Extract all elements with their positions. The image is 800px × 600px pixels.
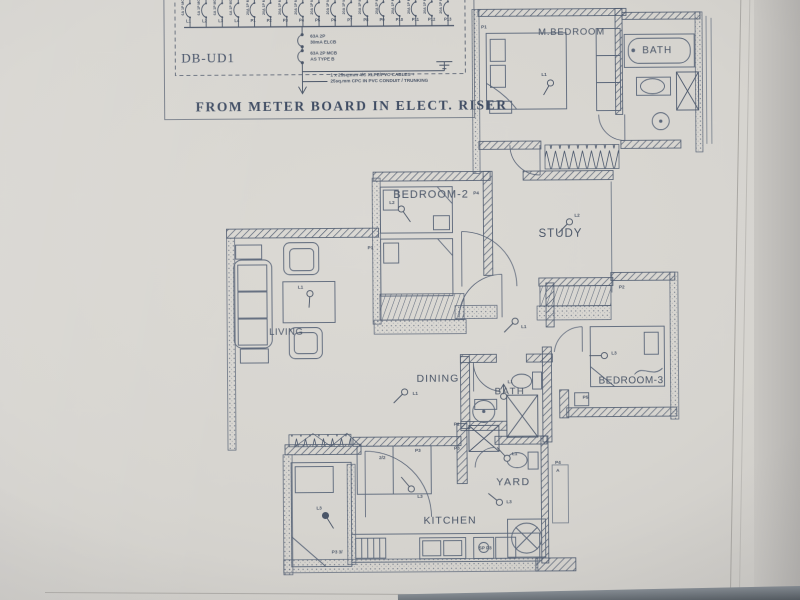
room-label-study: STUDY (538, 228, 582, 240)
circuit-ref-L2: L2 (202, 19, 207, 23)
socket-label-4: P5 (583, 396, 589, 401)
light-label-L3-10: L3 (506, 500, 511, 505)
breaker-rating-9: 20A 1P MCB (311, 0, 315, 15)
socket-label-5: P1 (454, 423, 460, 428)
breaker-rating-10: 20A 1P MCB (327, 0, 331, 15)
elcb-rating-line2: 30mA ELCB (310, 40, 336, 45)
circuit-ref-P8: P8 (363, 18, 368, 22)
breaker-rating-8: 20A 1P MCB (295, 0, 299, 15)
circuit-ref-P7: P7 (347, 18, 352, 22)
breaker-rating-12: 20A 1P MCB (359, 0, 363, 14)
room-label-bedroom-2: BEDROOM-2 (393, 189, 469, 202)
breaker-rating-17: 20A 1P MCB (440, 0, 444, 14)
photo-of-electrical-floorplan: DB-UD1 FROM METER BOARD IN ELECT. RISER … (0, 0, 800, 600)
circuit-ref-P3: P3 (283, 19, 288, 23)
socket-label-1: P1 (368, 246, 374, 251)
socket-label-9: SP P3 (479, 546, 492, 551)
circuit-ref-P13: P13 (444, 18, 451, 22)
room-label-m-bedroom: M.BEDROOM (538, 27, 605, 38)
breaker-rating-7: 20A 1P MCB (279, 0, 283, 15)
breaker-rating-15: 20A 1P MCB (408, 0, 412, 14)
breaker-rating-14: 20A 1P MCB (391, 0, 395, 14)
cable-note-line2: 25sq.mm CPC IN PVC CONDUIT / TRUNKING (330, 79, 428, 84)
socket-label-7: P3 (454, 447, 460, 452)
room-label-bath-2: BATH (495, 386, 526, 397)
light-label-L1-5: L1 (413, 392, 418, 397)
breaker-rating-3: 6A 1P MCB (214, 0, 218, 15)
socket-label-11: P4 (555, 461, 561, 466)
db-panel-name: DB-UD1 (181, 50, 235, 66)
light-label-L1-0: L1 (541, 73, 546, 78)
photo-right-edge (754, 0, 800, 600)
breaker-rating-1: 6A 1P MCB (182, 0, 186, 16)
socket-label-12: A (556, 469, 559, 474)
circuit-ref-P10: P10 (396, 18, 403, 22)
light-label-L3-7: L3 (611, 351, 616, 356)
breaker-rating-6: 20A 1P MCB (262, 0, 266, 15)
room-label-kitchen: KITCHEN (423, 514, 476, 526)
circuit-ref-P1: P1 (251, 19, 256, 23)
socket-label-10: P3 3/ (332, 550, 343, 555)
light-label-L3-8: L3 (417, 495, 422, 500)
breaker-rating-2: 6A 1P MCB (198, 0, 202, 15)
light-label-L2-1: L2 (389, 201, 394, 206)
light-label-L1-3: L1 (298, 286, 303, 291)
circuit-ref-P2: P2 (267, 19, 272, 23)
circuit-ref-P4: P4 (299, 19, 304, 23)
circuit-ref-P9: P9 (380, 18, 385, 22)
breaker-rating-4: 6A 1P MCB (230, 0, 234, 15)
socket-label-8: 2/2 (379, 456, 385, 461)
circuit-ref-P12: P12 (428, 18, 435, 22)
light-label-L2-2: L2 (574, 214, 579, 219)
breaker-rating-5: 20A 1P MCB (246, 0, 250, 15)
main-mcb-line2: AS TYPE B (310, 57, 334, 62)
socket-label-0: P1 (481, 25, 487, 30)
room-label-living: LIVING (269, 327, 303, 338)
circuit-ref-L3: L3 (218, 19, 223, 23)
socket-label-6: P3 (415, 449, 421, 454)
circuit-ref-L1: L1 (186, 19, 191, 23)
light-label-L3-11: L3 (316, 507, 321, 512)
light-label-L1-9: L1 (512, 452, 517, 457)
db-caption: FROM METER BOARD IN ELECT. RISER (196, 97, 508, 115)
drawing-sheet: DB-UD1 FROM METER BOARD IN ELECT. RISER … (0, 0, 800, 600)
light-label-L1-6: L1 (508, 380, 513, 385)
socket-label-2: P4 (473, 191, 479, 196)
text-layer: DB-UD1 FROM METER BOARD IN ELECT. RISER … (0, 0, 800, 600)
circuit-ref-P6: P6 (331, 18, 336, 22)
breaker-rating-13: 20A 1P MCB (375, 0, 379, 14)
room-label-bedroom-3: BEDROOM-3 (599, 375, 664, 386)
light-label-L1-4: L1 (521, 325, 526, 330)
room-label-yard: YARD (496, 476, 530, 488)
circuit-ref-L4: L4 (234, 19, 239, 23)
breaker-rating-11: 20A 1P MCB (343, 0, 347, 14)
socket-label-3: P2 (619, 285, 625, 290)
elcb-rating-line1: 63A 2P (310, 35, 325, 40)
breaker-rating-16: 20A 1P MCB (424, 0, 428, 14)
room-label-bath-1: BATH (642, 45, 672, 56)
room-label-dining: DINING (416, 373, 459, 385)
circuit-ref-P5: P5 (315, 19, 320, 23)
circuit-ref-P11: P11 (412, 18, 419, 22)
